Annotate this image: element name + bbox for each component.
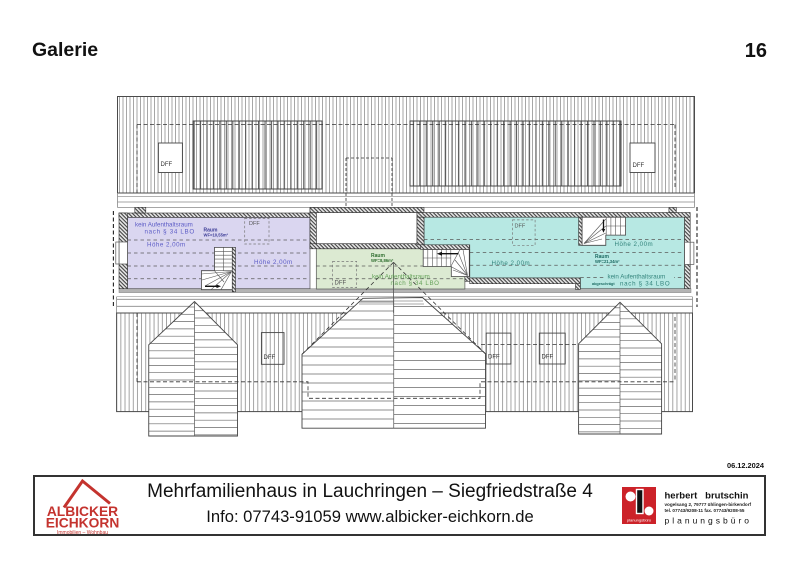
svg-text:herbert brutschin: herbert brutschin bbox=[665, 491, 749, 502]
svg-text:vogelsang 2, 79777 ühlingen-: vogelsang 2, 79777 ühlingen-birkendorf bbox=[665, 502, 752, 507]
svg-text:DFF: DFF bbox=[542, 355, 554, 361]
svg-text:Höhe 2,00m: Höhe 2,00m bbox=[615, 241, 654, 248]
svg-text:WF=8,86m²: WF=8,86m² bbox=[371, 258, 394, 263]
svg-text:abgeschrägt: abgeschrägt bbox=[592, 282, 615, 286]
svg-text:DFF: DFF bbox=[335, 281, 347, 287]
svg-text:nach § 34 LBO: nach § 34 LBO bbox=[620, 280, 670, 287]
svg-text:DFF: DFF bbox=[161, 162, 173, 168]
svg-text:nach § 34 LBO: nach § 34 LBO bbox=[391, 280, 440, 287]
svg-text:Höhe 2,00m: Höhe 2,00m bbox=[254, 259, 293, 266]
svg-text:EICHKORN: EICHKORN bbox=[46, 516, 120, 531]
svg-text:planungsbüro: planungsbüro bbox=[627, 518, 652, 523]
svg-text:DFF: DFF bbox=[249, 221, 260, 227]
svg-text:WF=10,55m²: WF=10,55m² bbox=[204, 232, 229, 237]
svg-text:DFF: DFF bbox=[633, 163, 645, 169]
svg-text:DFF: DFF bbox=[264, 355, 276, 361]
svg-text:nach § 34 LBO: nach § 34 LBO bbox=[145, 229, 195, 236]
svg-text:kein Aufenthaltsraum: kein Aufenthaltsraum bbox=[135, 222, 193, 229]
svg-text:Immobilien – Wohnbau: Immobilien – Wohnbau bbox=[57, 530, 108, 536]
svg-text:DFF: DFF bbox=[488, 355, 500, 361]
svg-text:planungsbüro: planungsbüro bbox=[665, 516, 753, 526]
svg-text:DFF: DFF bbox=[515, 224, 526, 230]
svg-text:Höhe 2,00m: Höhe 2,00m bbox=[492, 260, 531, 267]
svg-text:WF=21,34m²: WF=21,34m² bbox=[595, 259, 620, 264]
svg-text:tel. 07743/9208-11 fax. 0774: tel. 07743/9208-11 fax. 07743/9208-55 bbox=[665, 508, 745, 513]
svg-text:Höhe 2,00m: Höhe 2,00m bbox=[147, 242, 186, 249]
